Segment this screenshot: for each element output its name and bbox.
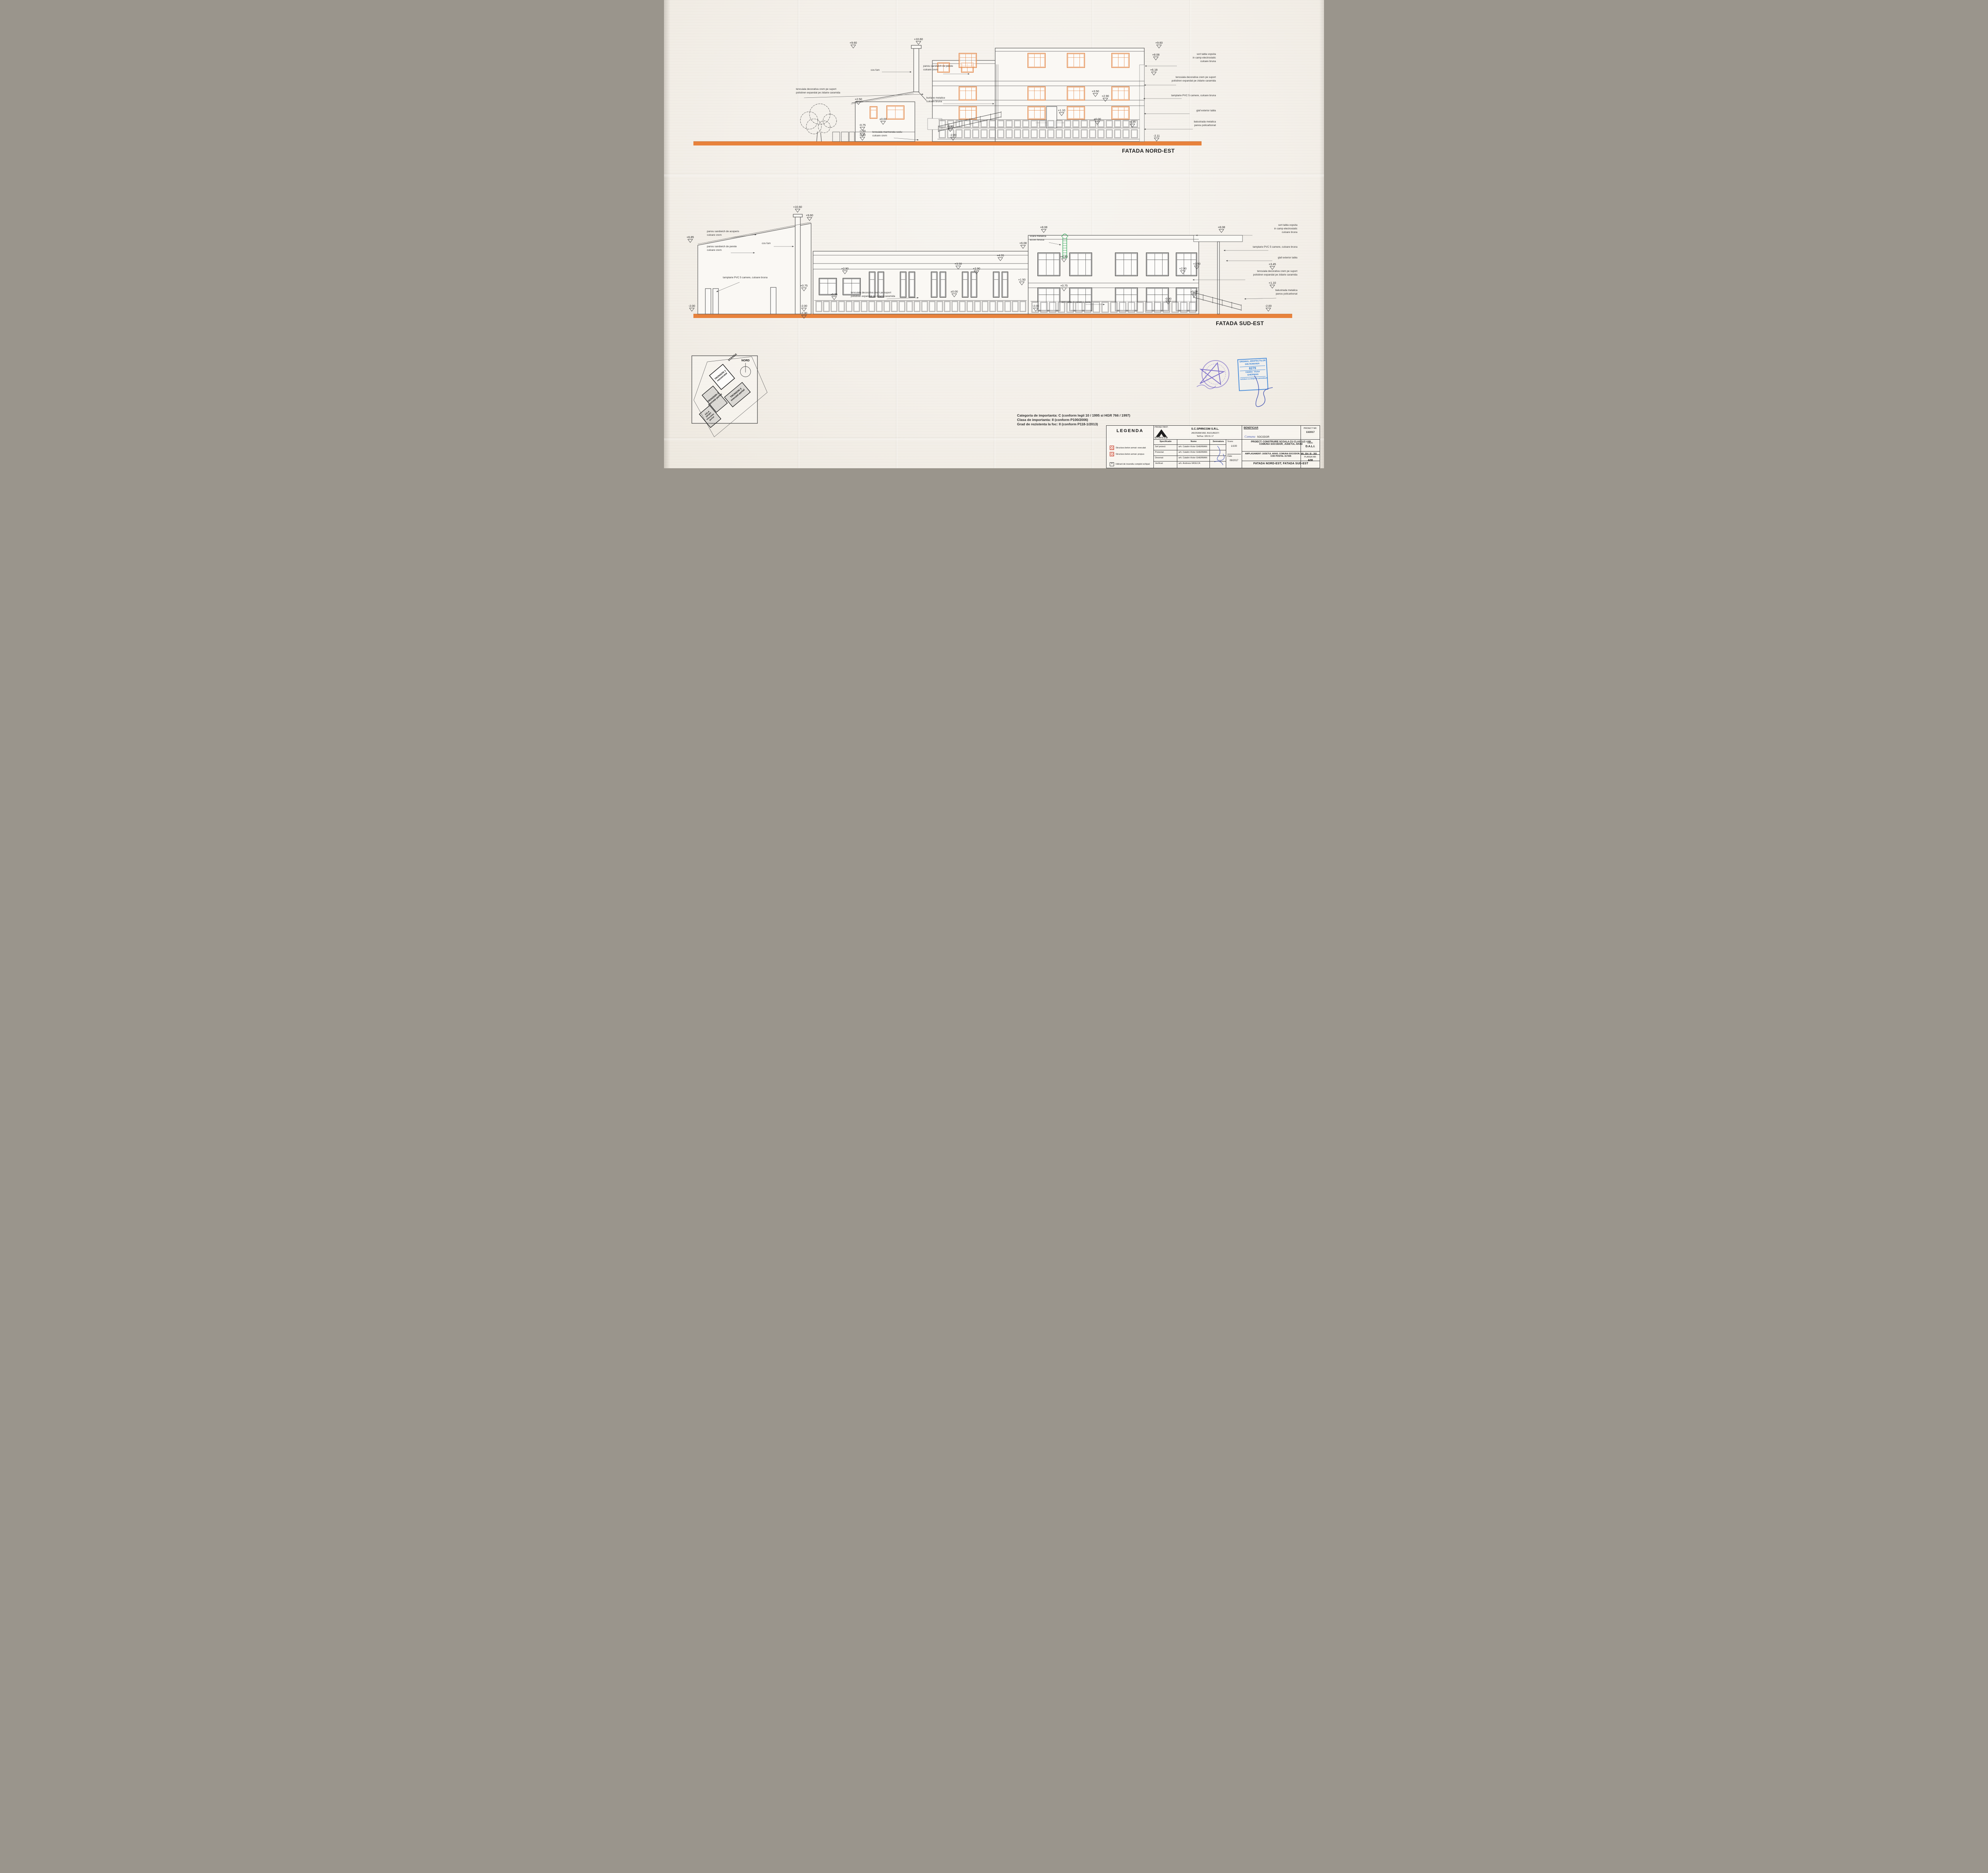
legend-heading: LEGENDA <box>1107 429 1153 433</box>
balustrade-panel <box>1056 120 1062 127</box>
spec-table-cell: arh. Catalin-Victor GHERMAN <box>1177 450 1209 456</box>
balustrade-panel <box>1056 130 1062 138</box>
beneficiar-name: SOCODOR <box>1257 436 1270 438</box>
balustrade-panel <box>1137 302 1143 312</box>
balustrade-panel <box>1006 130 1012 138</box>
annotation-label: tamplarie PVC 5 camere, culoare bruna <box>1253 246 1298 248</box>
elevation-label: +10.60 <box>793 205 802 209</box>
window <box>1067 107 1085 119</box>
window <box>1112 53 1129 68</box>
elevation-label: -2.00 <box>950 133 956 137</box>
door <box>705 289 711 314</box>
elevation-triangle <box>1270 266 1275 270</box>
annotation-label: culoare bruna <box>1200 60 1216 63</box>
balustrade-panel <box>884 301 890 312</box>
proiect-nr-label: PROIECT NR: <box>1301 427 1320 430</box>
fence-panel <box>833 132 840 142</box>
annotation-label: balustrada metalica <box>1276 289 1298 292</box>
balustrade-panel <box>1005 301 1011 312</box>
annotation-label: polistiren expandat pe zidarie caramida <box>851 295 895 298</box>
legend-item-label: Structura beton armat- executat <box>1116 447 1146 449</box>
elevation-label: -0.35 <box>831 293 837 296</box>
legend-item: Structura beton armat- propus <box>1110 452 1144 456</box>
window <box>959 53 977 68</box>
balustrade-panel <box>1098 130 1104 138</box>
elevation-label: -2.00 <box>1033 304 1039 308</box>
window <box>1112 87 1129 100</box>
balustrade-panel <box>1098 120 1104 127</box>
annotation-label: panou policarbonat <box>1276 293 1298 295</box>
elevation-triangle <box>1153 57 1158 60</box>
spec-table-cell: arh. Andreea VASILCA <box>1177 461 1209 468</box>
balustrade-panel <box>1114 130 1121 138</box>
balustrade-panel <box>1014 120 1021 127</box>
balustrade-panel <box>823 301 829 312</box>
annotation-label: polistiren expandat pe zidarie caramida <box>796 91 841 94</box>
balustrade-panel <box>1110 302 1117 312</box>
ground-line <box>693 142 1202 145</box>
faza-value: D.A.L.I. <box>1301 445 1320 448</box>
elevation-label: -0.90 <box>947 124 953 128</box>
drawing-sheet: +9.60+10.60+2.50±0.00-0.75-1.50-2.00-0.9… <box>664 0 1324 468</box>
balustrade-panel <box>854 301 860 312</box>
elevation-triangle <box>1157 45 1161 48</box>
balustrade-panel <box>891 301 897 312</box>
fence-panel <box>849 132 854 142</box>
balustrade-panel <box>899 301 905 312</box>
balustrade-panel <box>1189 302 1196 312</box>
window <box>1070 253 1092 276</box>
legend-cell: LEGENDA Structura beton armat- executatS… <box>1107 426 1153 468</box>
balustrade-panel <box>922 301 928 312</box>
signature-scribble <box>1209 444 1226 468</box>
balustrade-panel <box>1123 130 1129 138</box>
annotation-label: tamplarie PVC 5 camere, culoare bruna <box>723 276 768 279</box>
elevation-label: +3.50 <box>955 262 962 266</box>
balustrade-panel <box>944 301 950 312</box>
balustrade-panel <box>1006 120 1012 127</box>
balustrade-panel <box>1064 130 1071 138</box>
balustrade-panel <box>869 301 875 312</box>
balustrade-panel <box>998 130 1004 138</box>
balustrade-panel <box>1023 130 1029 138</box>
balustrade-panel <box>1073 120 1079 127</box>
elevation-label: +6.18 <box>1150 68 1157 72</box>
legend-item-label: Hidrant de incendiu complet echipat <box>1116 463 1150 465</box>
plansa-value: A08 <box>1301 459 1320 462</box>
door <box>713 289 718 314</box>
balustrade-panel <box>1039 130 1046 138</box>
wall-outline <box>911 45 921 48</box>
balustrade-panel <box>1081 120 1087 127</box>
scara-data-cell: Scara: 1/100 Data: 09/2017 <box>1226 439 1242 468</box>
balustrade-panel <box>1081 130 1087 138</box>
balustrade-panel <box>1023 120 1029 127</box>
balustrade-panel <box>975 301 980 312</box>
window <box>1038 253 1060 276</box>
elevation-label: ±0.00 <box>1094 117 1101 121</box>
window <box>959 87 977 100</box>
tree-trunk <box>821 132 821 142</box>
elevation-label: -0.90 <box>1165 297 1171 301</box>
elevation-label: +3.50 <box>1193 262 1200 266</box>
balustrade-panel <box>1163 302 1170 312</box>
beneficiar-cell: BENEFICIAR Comuna SOCODOR <box>1242 426 1301 439</box>
balustrade-panel <box>982 301 988 312</box>
elevation-label: -2.00 <box>859 133 866 137</box>
elevation-label: +9.60 <box>1155 41 1163 45</box>
balustrade-panel <box>1049 302 1056 312</box>
balustrade-panel <box>1106 120 1112 127</box>
annotation-label: glaf exterior tabla <box>1278 256 1297 259</box>
annotation-label: culoare crem <box>707 234 722 237</box>
balustrade-panel <box>997 301 1003 312</box>
balustrade-panel <box>989 130 996 138</box>
window <box>1067 87 1085 100</box>
annotation-label: culoare crem <box>923 68 938 71</box>
categoria-line: Categoria de importanta: C (conform legi… <box>1017 413 1130 418</box>
balustrade-panel <box>831 301 837 312</box>
wall-outline <box>795 217 800 314</box>
elevation-label: +8.08 <box>1218 225 1225 229</box>
balustrade-panel <box>1039 120 1046 127</box>
balustrade-panel <box>1131 130 1138 138</box>
elevation-label: +3.50 <box>1092 89 1099 93</box>
elevation-triangle <box>916 41 921 45</box>
elevation-triangle <box>807 217 812 221</box>
elevation-triangle <box>688 239 693 242</box>
elevation-triangle <box>1219 229 1224 233</box>
annotation-label: scara metalica <box>1030 235 1046 238</box>
annotation-label: panou sandwich de perete <box>923 65 953 68</box>
window <box>1028 53 1045 68</box>
elevation-label: -1.50 <box>859 129 866 133</box>
window <box>1028 107 1045 119</box>
elevation-triangle <box>1266 308 1271 311</box>
window <box>1146 253 1169 276</box>
balustrade-panel <box>861 301 867 312</box>
leader-line <box>804 94 923 98</box>
annotation-label: polistiren expandat pe zidarie caramida <box>1253 273 1298 276</box>
elevation-label: +2.90 <box>841 267 848 270</box>
balustrade-panel <box>1114 120 1121 127</box>
tree-foliage <box>818 121 830 133</box>
annotation-label: acces terasa <box>1030 238 1044 241</box>
balustrade-panel <box>1041 302 1047 312</box>
annotation-label: panou policarbonat <box>1194 124 1216 127</box>
annotation-label: tencuiala decorativa crem pe suport <box>851 291 891 294</box>
spec-table-cell: Proiectat: <box>1154 450 1177 456</box>
plansa-cell: PLANSA NR: A08 <box>1301 454 1320 468</box>
tree-foliage <box>800 112 818 129</box>
spec-table-cell: arh. Catalin-Victor GHERMAN <box>1177 444 1209 450</box>
elevation-label: +0.75 <box>800 284 808 287</box>
faza-cell: FAZA: D.A.L.I. <box>1301 439 1320 454</box>
balustrade-panel <box>816 301 822 312</box>
window <box>1112 107 1129 119</box>
importance-category-note: Categoria de importanta: C (conform legi… <box>1017 413 1130 427</box>
window <box>870 107 877 118</box>
faza-label: FAZA: <box>1301 442 1320 444</box>
balustrade-panel <box>956 130 962 138</box>
balustrade-panel <box>1031 120 1037 127</box>
elevation-label: -2.00 <box>1265 304 1272 308</box>
facade-ne-title: FATADA NORD-EST <box>1122 148 1175 154</box>
annotation-label: tencuiala decorativa crem pe suport <box>796 88 836 91</box>
balustrade-panel <box>1014 130 1021 138</box>
elevation-label: -2.30 <box>801 311 807 315</box>
window <box>959 107 977 119</box>
legend-item: ✕Hidrant de incendiu complet echipat <box>1110 462 1150 466</box>
elevation-label: +2.50 <box>855 97 862 101</box>
elevation-triangle <box>795 209 800 212</box>
ground-line <box>693 314 1292 318</box>
balustrade-panel <box>981 130 987 138</box>
hydrant-icon: ✕ <box>1110 462 1114 466</box>
annotation-label: tencuiala decorativa crem pe suport <box>1176 76 1216 79</box>
elevation-label: +6.85 <box>687 235 694 239</box>
faza-cell <box>1320 439 1320 440</box>
fence-panel <box>841 132 848 142</box>
balustrade-panel <box>1102 302 1109 312</box>
annotation-label: burlane metalice <box>926 97 945 99</box>
annotation-label: panou sandwich de acoperis <box>707 230 739 233</box>
company-name: S.C.SPIRICOM S.R.L. <box>1170 428 1241 430</box>
annotation-label: tencuiala decorativa crem pe suport <box>1257 270 1297 273</box>
balustrade-panel <box>937 301 943 312</box>
balustrade-panel <box>1128 302 1135 312</box>
balustrade-panel <box>1123 120 1129 127</box>
balustrade-panel <box>1064 120 1071 127</box>
leader-line <box>1244 298 1276 299</box>
balustrade-panel <box>952 301 958 312</box>
balustrade-panel <box>1093 302 1100 312</box>
annotation-label: tencuiala marmorata soclu <box>872 131 902 134</box>
balustrade-panel <box>1106 130 1112 138</box>
balustrade-panel <box>1020 301 1026 312</box>
annotation-label: polistiren expandat pe zidarie caramida <box>1172 79 1216 82</box>
elevation-label: +8.08 <box>1152 53 1159 56</box>
balustrade-panel <box>990 301 996 312</box>
annotation-label: balustrada metalica <box>1194 120 1216 123</box>
elevation-label: ±0.00 <box>1190 290 1198 293</box>
tree-foliage <box>806 119 821 134</box>
slab-band <box>1194 235 1242 242</box>
data-label: Data: <box>1227 454 1241 458</box>
elevation-label: +6.08 <box>1019 241 1027 245</box>
balustrade-panel <box>1089 130 1096 138</box>
balustrade-panel <box>1012 301 1018 312</box>
annotation-label: culoare crem <box>872 134 887 137</box>
hatch-swatch-icon <box>1110 446 1114 450</box>
beneficiar-handwriting: Comuna <box>1244 435 1255 438</box>
balustrade-panel <box>989 120 996 127</box>
balustrade-panel <box>914 301 920 312</box>
elevation-label: +1.10 <box>1269 281 1276 285</box>
balustrade-panel <box>967 301 973 312</box>
balustrade-panel <box>1073 130 1079 138</box>
elevation-label: +3.45 <box>1269 262 1276 266</box>
window <box>1115 253 1138 276</box>
spec-table-cell: Nume <box>1177 440 1209 444</box>
balustrade-panel <box>1048 120 1054 127</box>
balustrade-panel <box>973 120 979 127</box>
window <box>1028 87 1045 100</box>
spec-table-cell: Specificatie <box>1154 440 1177 444</box>
door <box>771 287 776 314</box>
balustrade-panel <box>964 130 971 138</box>
balustrade-panel <box>1180 302 1187 312</box>
elevation-triangle <box>851 45 856 48</box>
company-reg: J40/25308/1992, BUCURESTI <box>1170 432 1241 434</box>
annotation-label: cos fum <box>871 69 879 72</box>
balustrade-panel <box>1119 302 1126 312</box>
elevation-label: +9.60 <box>806 213 813 217</box>
elevation-triangle <box>1151 72 1156 75</box>
proiect-nr: 13/2017 <box>1301 431 1320 434</box>
elevation-label: +8.08 <box>1040 225 1047 229</box>
annotation-label: in camp electrostatic <box>1274 227 1298 230</box>
elevation-label: -2.00 <box>689 304 695 308</box>
balustrade-panel <box>1048 130 1054 138</box>
elevation-triangle <box>1270 285 1275 288</box>
balustrade-panel <box>956 120 962 127</box>
balustrade-panel <box>1172 302 1178 312</box>
elevation-triangle <box>1021 245 1025 248</box>
plansa-label: PLANSA NR: <box>1301 456 1320 458</box>
annotation-label: culoare crem <box>707 249 722 252</box>
balustrade-panel <box>973 130 979 138</box>
annotation-label: sort tabla vopsita <box>1197 53 1216 56</box>
annotation-label: culoare bruna <box>1282 231 1298 234</box>
balustrade-panel <box>876 301 882 312</box>
elevation-label: +1.10 <box>1058 109 1065 112</box>
annotation-label: tencuiala decorativa soclu <box>1062 301 1091 304</box>
wall-outline <box>914 48 919 92</box>
balustrade-panel <box>929 301 935 312</box>
balustrade-panel <box>907 301 912 312</box>
spec-table-cell: arh. Catalin-Victor GHERMAN <box>1177 456 1209 461</box>
balustrade-panel <box>959 301 965 312</box>
balustrade-panel <box>839 301 845 312</box>
annotation-label: tamplarie PVC 5 camere, culoare bruna <box>1171 94 1216 97</box>
elevation-label: +0.75 <box>1060 284 1068 287</box>
proiectant-cell: PROIECTANT: SPIRICOM S.C.SPIRICOM S.R.L.… <box>1153 426 1242 439</box>
elevation-triangle <box>1041 229 1046 233</box>
legend-item-label: Structura beton armat- propus <box>1116 453 1144 456</box>
balustrade-panel <box>1089 120 1096 127</box>
balustrade-panel <box>1145 302 1152 312</box>
elevation-label: -0.75 <box>859 123 866 127</box>
balustrade-panel <box>846 301 852 312</box>
proiect-nr-cell: PROIECT NR: 13/2017 <box>1301 426 1320 439</box>
wall-outline <box>1140 65 1144 142</box>
elevation-label: +4.40 <box>1060 255 1068 258</box>
tree-foliage <box>810 104 830 124</box>
elevation-label: +2.90 <box>1179 267 1186 270</box>
spec-table-cell: Sef proiect: <box>1154 444 1177 450</box>
categoria-line: Clasa de importanta: II (conform P100/20… <box>1017 418 1130 422</box>
facade-se-title: FATADA SUD-EST <box>1216 320 1264 326</box>
title-block: LEGENDA Structura beton armat- executatS… <box>1106 425 1320 468</box>
hatch-swatch-icon <box>1110 452 1114 456</box>
elevation-label: -2.00 <box>801 304 807 308</box>
annotation-label: glaf exterior tabla <box>1196 109 1216 112</box>
elevation-triangle <box>689 308 694 311</box>
beneficiar-label: BENEFICIAR <box>1244 427 1258 429</box>
elevation-label: ±0.00 <box>879 117 887 121</box>
scara-value: 1/100 <box>1226 445 1242 448</box>
elevation-label: +4.55 <box>997 254 1004 257</box>
elevation-label: +1.50 <box>1018 278 1025 281</box>
north-label: NORD <box>742 359 750 362</box>
balustrade-panel <box>1154 302 1161 312</box>
elevation-label: -0.35 <box>1129 120 1136 124</box>
annotation-label: in camp electrostatic <box>1193 56 1216 59</box>
elevation-label: -2.11 <box>1153 134 1160 138</box>
elevation-label: +2.90 <box>1102 94 1109 98</box>
elevation-label: ±0.00 <box>951 290 958 293</box>
spec-table: SpecificatieNumeSemnaturaSef proiect:arh… <box>1153 439 1226 468</box>
elevation-label: +10.60 <box>914 37 923 41</box>
spec-table-cell: Desenat: <box>1154 456 1177 461</box>
balustrade-panel <box>1031 130 1037 138</box>
elevation-label: +9.60 <box>850 41 857 45</box>
wall-outline <box>793 214 802 217</box>
company-tel: Tel/Fax: 326.51.17 <box>1170 435 1241 438</box>
annotation-label: cos fum <box>762 242 771 245</box>
window <box>1067 53 1085 68</box>
elevation-label: +2.90 <box>973 267 980 270</box>
annotation-label: panou sandwich de perete <box>707 245 737 248</box>
annotation-label: sort tabla vopsita <box>1278 224 1298 227</box>
legend-item: Structura beton armat- executat <box>1110 446 1146 450</box>
data-value: 09/2017 <box>1226 460 1242 462</box>
annotation-label: culoare bruna <box>926 100 942 103</box>
spec-table-cell: Semnatura <box>1209 440 1226 444</box>
balustrade-panel <box>998 120 1004 127</box>
roof-line <box>918 92 926 101</box>
spec-table-cell: Verificat: <box>1154 461 1177 468</box>
stamp-scribble <box>1193 356 1241 399</box>
elevation-triangle <box>1154 138 1159 141</box>
architect-signature <box>1242 372 1278 419</box>
wall-outline <box>1217 242 1219 314</box>
scara-label: Scara: <box>1227 440 1233 443</box>
